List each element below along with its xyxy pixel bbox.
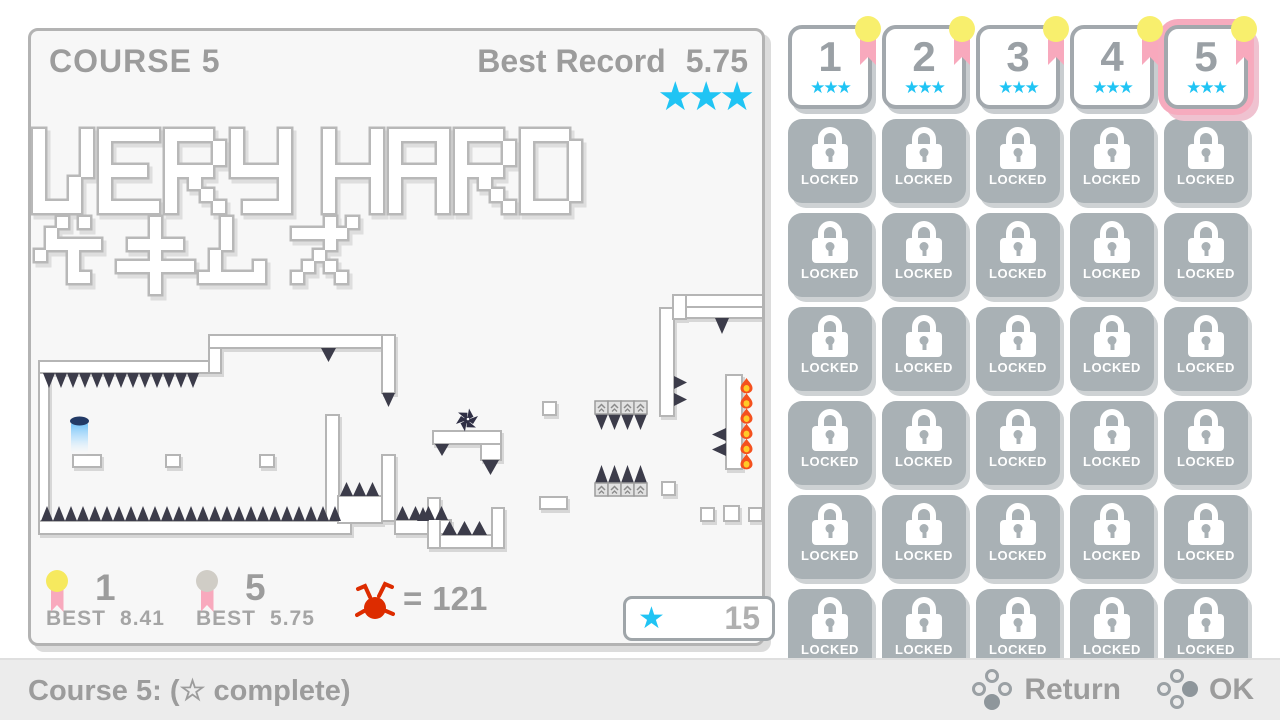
course-stars-icon: ★★★	[980, 79, 1056, 96]
padlock-icon	[1006, 315, 1030, 332]
course-number: 2	[886, 36, 962, 78]
return-button[interactable]: Return	[972, 669, 1121, 711]
locked-label: LOCKED	[1164, 454, 1248, 469]
locked-course-button[interactable]: LOCKED	[1070, 307, 1154, 391]
padlock-body	[1188, 238, 1224, 263]
locked-course-button[interactable]: LOCKED	[788, 495, 872, 579]
padlock-body	[1000, 144, 1036, 169]
course-stars-icon: ★★★	[886, 79, 962, 96]
padlock-icon	[912, 127, 936, 144]
padlock-icon	[912, 315, 936, 332]
padlock-body	[1188, 332, 1224, 357]
locked-label: LOCKED	[882, 454, 966, 469]
padlock-icon	[1006, 409, 1030, 426]
locked-course-button[interactable]: LOCKED	[1070, 495, 1154, 579]
locked-course-button[interactable]: LOCKED	[788, 307, 872, 391]
locked-course-button[interactable]: LOCKED	[1070, 213, 1154, 297]
bottom-bar: Course 5: (☆ complete) ReturnOK	[0, 658, 1280, 720]
locked-label: LOCKED	[788, 548, 872, 563]
silver-medal-icon	[196, 570, 218, 612]
course-number: 5	[1168, 36, 1244, 78]
locked-label: LOCKED	[788, 642, 872, 657]
locked-label: LOCKED	[882, 548, 966, 563]
medal-icon	[1137, 16, 1163, 42]
gold-best-line: BEST8.41	[46, 607, 165, 631]
padlock-icon	[1194, 597, 1218, 614]
course-button-3[interactable]: 3★★★	[976, 25, 1060, 109]
locked-label: LOCKED	[1070, 360, 1154, 375]
level-walls-layer	[39, 295, 762, 548]
locked-course-button[interactable]: LOCKED	[976, 213, 1060, 297]
padlock-body	[1188, 614, 1224, 639]
hint-label: Return	[1024, 673, 1121, 707]
difficulty-pixel-text	[33, 129, 581, 294]
gold-medal-rank: 1	[95, 569, 116, 606]
padlock-icon	[1006, 127, 1030, 144]
padlock-body	[1000, 426, 1036, 451]
locked-course-button[interactable]: LOCKED	[882, 119, 966, 203]
locked-label: LOCKED	[1164, 548, 1248, 563]
padlock-body	[1094, 520, 1130, 545]
locked-label: LOCKED	[1070, 172, 1154, 187]
medal-icon	[1231, 16, 1257, 42]
locked-label: LOCKED	[788, 172, 872, 187]
locked-course-button[interactable]: LOCKED	[788, 119, 872, 203]
locked-label: LOCKED	[788, 454, 872, 469]
controller-hints: ReturnOK	[972, 669, 1254, 711]
padlock-body	[1000, 238, 1036, 263]
padlock-body	[1000, 520, 1036, 545]
padlock-icon	[1194, 503, 1218, 520]
padlock-icon	[818, 315, 842, 332]
locked-course-button[interactable]: LOCKED	[976, 119, 1060, 203]
locked-label: LOCKED	[1164, 642, 1248, 657]
padlock-icon	[1100, 409, 1124, 426]
locked-label: LOCKED	[976, 172, 1060, 187]
locked-course-button[interactable]: LOCKED	[882, 213, 966, 297]
silver-best-line: BEST5.75	[196, 607, 315, 631]
course-select-grid: 1★★★2★★★3★★★4★★★5★★★LOCKEDLOCKEDLOCKEDLO…	[788, 25, 1248, 673]
locked-course-button[interactable]: LOCKED	[1164, 495, 1248, 579]
locked-label: LOCKED	[788, 360, 872, 375]
locked-label: LOCKED	[1164, 172, 1248, 187]
padlock-body	[1000, 332, 1036, 357]
locked-label: LOCKED	[1070, 548, 1154, 563]
padlock-body	[1094, 426, 1130, 451]
locked-label: LOCKED	[1070, 454, 1154, 469]
death-count: 121	[432, 580, 487, 618]
spinner-enemy-icon	[456, 408, 478, 431]
course-stars-icon: ★★★	[1168, 79, 1244, 96]
course-number: 3	[980, 36, 1056, 78]
padlock-icon	[1194, 315, 1218, 332]
player-start-icon	[70, 417, 89, 457]
padlock-body	[812, 614, 848, 639]
padlock-icon	[912, 597, 936, 614]
locked-label: LOCKED	[976, 548, 1060, 563]
locked-label: LOCKED	[1070, 642, 1154, 657]
padlock-body	[906, 426, 942, 451]
controller-buttons-icon	[972, 669, 1014, 711]
padlock-icon	[1006, 221, 1030, 238]
locked-course-button[interactable]: LOCKED	[788, 401, 872, 485]
level-preview	[31, 31, 762, 643]
star-icon: ★	[638, 604, 665, 634]
padlock-body	[1188, 144, 1224, 169]
gold-medal-icon	[46, 570, 68, 612]
course-stars-icon: ★★★	[1074, 79, 1150, 96]
padlock-body	[906, 332, 942, 357]
death-character-icon	[355, 575, 395, 623]
padlock-icon	[1100, 127, 1124, 144]
padlock-icon	[1100, 221, 1124, 238]
course-preview-card: COURSE 5 Best Record 5.75 ★★★ 1 BEST8.41…	[28, 28, 765, 646]
hint-label: OK	[1209, 673, 1254, 707]
equals-sign: =	[403, 580, 422, 618]
padlock-body	[812, 426, 848, 451]
padlock-body	[812, 144, 848, 169]
padlock-body	[1000, 614, 1036, 639]
padlock-body	[1188, 520, 1224, 545]
locked-course-button[interactable]: LOCKED	[976, 307, 1060, 391]
locked-course-button[interactable]: LOCKED	[1164, 307, 1248, 391]
locked-course-button[interactable]: LOCKED	[1070, 401, 1154, 485]
medal-icon	[949, 16, 975, 42]
ok-button[interactable]: OK	[1157, 669, 1254, 711]
locked-course-button[interactable]: LOCKED	[788, 213, 872, 297]
padlock-icon	[1194, 127, 1218, 144]
locked-course-button[interactable]: LOCKED	[1164, 213, 1248, 297]
padlock-icon	[1194, 221, 1218, 238]
silver-medal-rank: 5	[245, 569, 266, 606]
padlock-body	[1094, 332, 1130, 357]
medal-icon	[855, 16, 881, 42]
padlock-body	[1094, 614, 1130, 639]
padlock-body	[812, 520, 848, 545]
padlock-icon	[912, 221, 936, 238]
locked-label: LOCKED	[882, 642, 966, 657]
locked-label: LOCKED	[788, 266, 872, 281]
padlock-icon	[912, 503, 936, 520]
padlock-icon	[818, 503, 842, 520]
locked-label: LOCKED	[882, 266, 966, 281]
locked-label: LOCKED	[1164, 360, 1248, 375]
locked-label: LOCKED	[976, 266, 1060, 281]
padlock-icon	[818, 221, 842, 238]
course-number: 1	[792, 36, 868, 78]
padlock-icon	[818, 597, 842, 614]
padlock-body	[1094, 238, 1130, 263]
locked-label: LOCKED	[882, 360, 966, 375]
padlock-icon	[1100, 597, 1124, 614]
padlock-body	[906, 238, 942, 263]
padlock-icon	[1100, 503, 1124, 520]
padlock-body	[1094, 144, 1130, 169]
locked-course-button[interactable]: LOCKED	[882, 401, 966, 485]
padlock-icon	[818, 127, 842, 144]
locked-course-button[interactable]: LOCKED	[1070, 119, 1154, 203]
course-stars-icon: ★★★	[792, 79, 868, 96]
locked-course-button[interactable]: LOCKED	[976, 401, 1060, 485]
medal-icon	[1043, 16, 1069, 42]
padlock-body	[906, 144, 942, 169]
locked-course-button[interactable]: LOCKED	[1164, 401, 1248, 485]
course-button-2[interactable]: 2★★★	[882, 25, 966, 109]
padlock-icon	[912, 409, 936, 426]
padlock-icon	[1100, 315, 1124, 332]
death-counter: = 121	[355, 575, 487, 623]
locked-label: LOCKED	[1070, 266, 1154, 281]
padlock-icon	[1194, 409, 1218, 426]
course-button-5[interactable]: 5★★★	[1164, 25, 1248, 109]
locked-label: LOCKED	[976, 454, 1060, 469]
padlock-body	[812, 332, 848, 357]
course-button-4[interactable]: 4★★★	[1070, 25, 1154, 109]
locked-label: LOCKED	[976, 360, 1060, 375]
status-text: Course 5: (☆ complete)	[28, 673, 351, 708]
level-objects-layer	[70, 378, 753, 496]
locked-course-button[interactable]: LOCKED	[1164, 119, 1248, 203]
padlock-icon	[1006, 503, 1030, 520]
star-count: 15	[724, 600, 760, 637]
padlock-body	[1188, 426, 1224, 451]
padlock-icon	[818, 409, 842, 426]
course-number: 4	[1074, 36, 1150, 78]
course-button-1[interactable]: 1★★★	[788, 25, 872, 109]
locked-label: LOCKED	[882, 172, 966, 187]
padlock-body	[906, 520, 942, 545]
padlock-icon	[1006, 597, 1030, 614]
locked-label: LOCKED	[1164, 266, 1248, 281]
padlock-body	[906, 614, 942, 639]
locked-label: LOCKED	[976, 642, 1060, 657]
controller-buttons-icon	[1157, 669, 1199, 711]
padlock-body	[812, 238, 848, 263]
locked-course-button[interactable]: LOCKED	[882, 307, 966, 391]
locked-course-button[interactable]: LOCKED	[976, 495, 1060, 579]
locked-course-button[interactable]: LOCKED	[882, 495, 966, 579]
star-counter-box: ★ 15	[623, 596, 775, 641]
